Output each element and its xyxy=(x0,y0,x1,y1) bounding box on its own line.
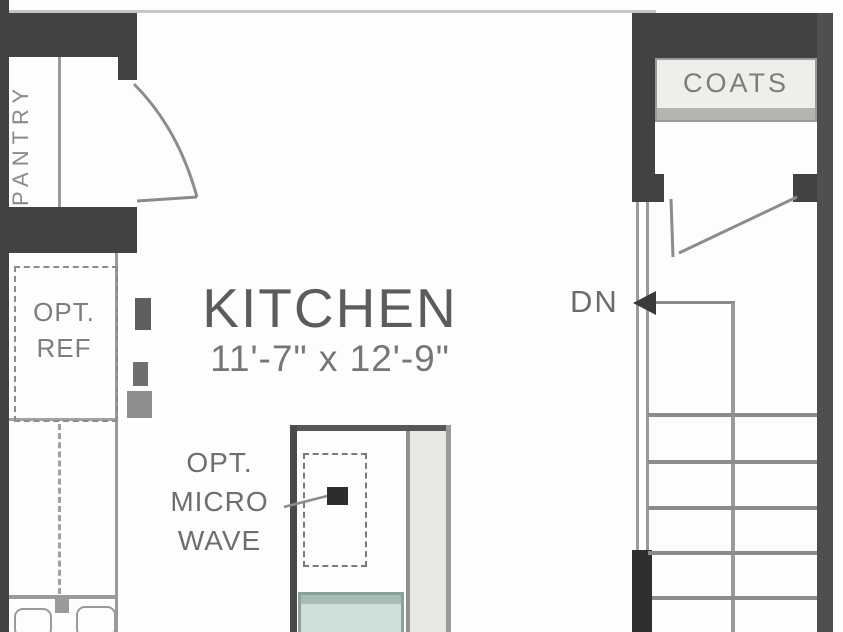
counter-centerline xyxy=(58,424,61,594)
stairs-left-wall xyxy=(632,550,652,632)
opt-microwave-outline xyxy=(303,453,367,567)
stair-tread-1 xyxy=(648,413,817,417)
range-divider-mark xyxy=(55,599,69,613)
opt-ref-line1: OPT. xyxy=(33,297,95,327)
opt-refrigerator-label: OPT. REF xyxy=(14,294,114,366)
pantry-top-wall xyxy=(0,13,137,57)
pantry-room-label: PANTRY xyxy=(10,66,32,206)
closet-door-leaf-left xyxy=(671,199,673,257)
counter-tick-1 xyxy=(135,298,151,330)
pantry-bottom-wall xyxy=(0,207,137,253)
opt-micro-line2: MICRO xyxy=(170,486,268,517)
stairs-path-line xyxy=(650,301,735,304)
opt-micro-line1: OPT. xyxy=(186,447,252,478)
island-inner-line xyxy=(406,431,410,632)
closet-top-wall xyxy=(632,13,823,58)
coats-rod-line xyxy=(657,108,815,120)
island-sink-rim xyxy=(301,595,401,604)
island-sink xyxy=(298,592,404,632)
stair-tread-2 xyxy=(648,460,817,464)
counter-tick-2 xyxy=(133,362,148,386)
coats-closet-label: COATS xyxy=(657,68,815,99)
floor-plan: PANTRY OPT. REF KITCHEN 11'-7" x 12'-9" … xyxy=(0,0,843,632)
pantry-door-top-jamb xyxy=(118,13,137,80)
pantry-door-leaf xyxy=(137,197,197,201)
coats-closet-shelf: COATS xyxy=(655,58,817,122)
opt-microwave-dot xyxy=(327,487,348,505)
opt-microwave-label: OPT. MICRO WAVE xyxy=(152,443,287,560)
kitchen-dimensions: 11'-7" x 12'-9" xyxy=(175,338,485,380)
pantry-door-swing-arc xyxy=(134,84,197,197)
opt-ref-line2: REF xyxy=(37,333,92,363)
stair-tread-5 xyxy=(652,596,817,600)
stairs-down-label: DN xyxy=(570,284,619,320)
stairs-left-railing xyxy=(636,202,649,552)
range-burner-left xyxy=(14,608,52,632)
kitchen-room-label: KITCHEN xyxy=(175,276,485,340)
stairs-mid-stringer xyxy=(731,303,735,632)
opt-micro-line3: WAVE xyxy=(178,525,261,556)
island-top-edge xyxy=(290,425,451,431)
island-left-edge xyxy=(290,425,297,632)
island-right-edge xyxy=(446,425,451,632)
island-strip-fill xyxy=(410,431,446,632)
closet-door-right-jamb xyxy=(793,174,819,202)
pantry-shelf-line xyxy=(58,57,61,207)
stair-tread-3 xyxy=(648,506,817,510)
counter-end-block xyxy=(127,391,152,418)
closet-door-leaf-right xyxy=(679,197,797,253)
stair-tread-4 xyxy=(648,551,817,555)
closet-door-left-jamb xyxy=(648,174,664,202)
range-burner-right xyxy=(76,606,116,632)
right-exterior-wall xyxy=(817,13,833,632)
